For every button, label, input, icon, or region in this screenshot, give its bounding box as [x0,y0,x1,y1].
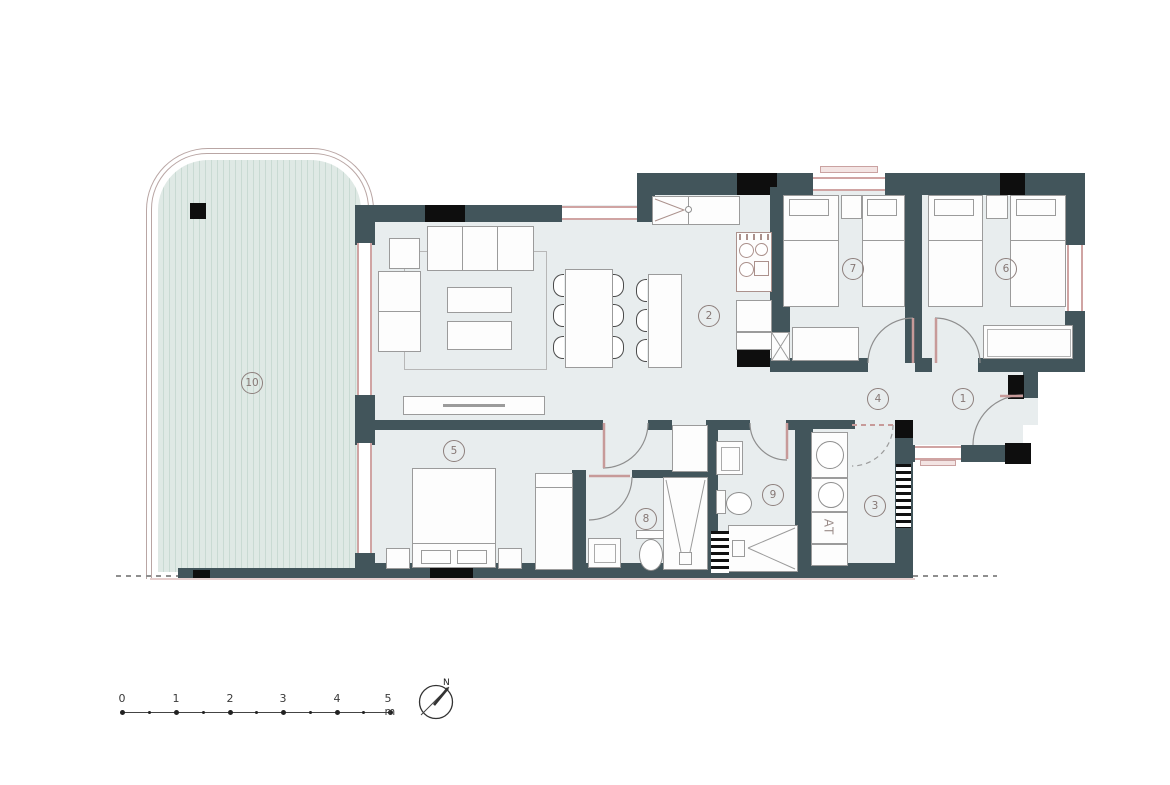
floor-plan-canvas: AT 1 2 3 4 5 6 7 8 9 [0,0,1170,785]
scale-half-dot [362,711,365,714]
room-label-6: 6 [995,258,1017,280]
scale-half-dot [309,711,312,714]
room-label-2: 2 [698,305,720,327]
room-label-7: 7 [842,258,864,280]
scale-dot [281,710,286,715]
room-label-9: 9 [762,484,784,506]
scale-half-dot [202,711,205,714]
ground-line-left [116,575,178,577]
scale-tick-5: 5 m [385,692,402,718]
plan-linework [0,0,1170,785]
scale-dot [335,710,340,715]
room-label-3: 3 [864,495,886,517]
room-label-8: 8 [635,508,657,530]
scale-dot [120,710,125,715]
room-label-4: 4 [867,388,889,410]
scale-bar: 0 1 2 3 4 5 m [110,688,410,722]
scale-half-dot [148,711,151,714]
scale-tick-3: 3 [280,692,287,705]
room-label-1: 1 [952,388,974,410]
scale-dot [228,710,233,715]
north-label: N [443,678,450,688]
scale-tick-2: 2 [227,692,234,705]
room-label-5: 5 [443,440,465,462]
ground-line-right [913,575,997,577]
scale-dot [174,710,179,715]
scale-tick-4: 4 [334,692,341,705]
scale-tick-1: 1 [173,692,180,705]
north-compass: N [412,676,466,724]
scale-half-dot [255,711,258,714]
scale-tick-0: 0 [119,692,126,705]
room-label-10: 10 [241,372,263,394]
